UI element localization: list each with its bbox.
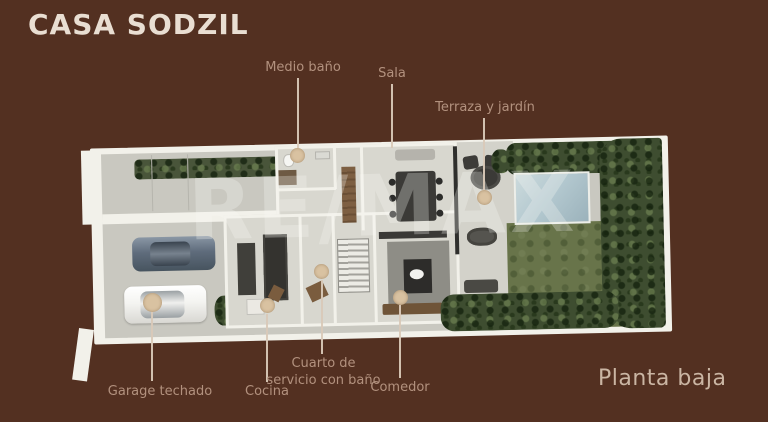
room-label-medio-bano: Medio baño [258,60,348,77]
connector-comedor [399,305,401,378]
front-hedge [134,156,292,180]
fire-pit [467,227,497,246]
kitchen-counter [237,243,256,295]
room-label-comedor: Comedor [362,380,438,397]
connector-medio-bano [297,78,299,148]
garden-bushes-bottom [440,291,619,332]
car-white [124,285,207,324]
staircase [337,238,370,293]
room-label-terraza-jardin: Terraza y jardín [430,100,540,117]
marker-terraza-jardin [477,190,492,205]
floor-plan-render [90,135,672,344]
page-title: CASA SODZIL [28,8,249,41]
plan-level-caption: Planta baja [598,366,738,391]
stone-slab [464,279,498,293]
marker-cocina [260,298,275,313]
marker-cuarto-servicio [314,264,329,279]
floor-plan-page: CASA SODZIL [0,0,768,422]
car-gray [132,236,216,272]
connector-terraza-jardin [483,118,485,190]
shower [278,170,296,185]
room-label-garage-techado: Garage techado [100,384,220,401]
connector-garage-techado [151,311,153,381]
marker-medio-bano [290,148,305,163]
hall-closet [341,167,356,223]
boundary-wall-step [81,150,99,224]
entry-walkway [72,328,94,382]
room-label-sala: Sala [362,66,422,83]
sofa [395,149,435,161]
sink [315,151,330,159]
marker-comedor [393,290,408,305]
connector-cuarto-servicio [321,280,323,354]
marker-garage-techado [143,293,162,312]
swimming-pool [514,171,591,225]
car-gray-cabin [150,241,191,266]
connector-sala [391,84,393,148]
dining-table [395,171,436,222]
wood-bench [382,303,442,315]
